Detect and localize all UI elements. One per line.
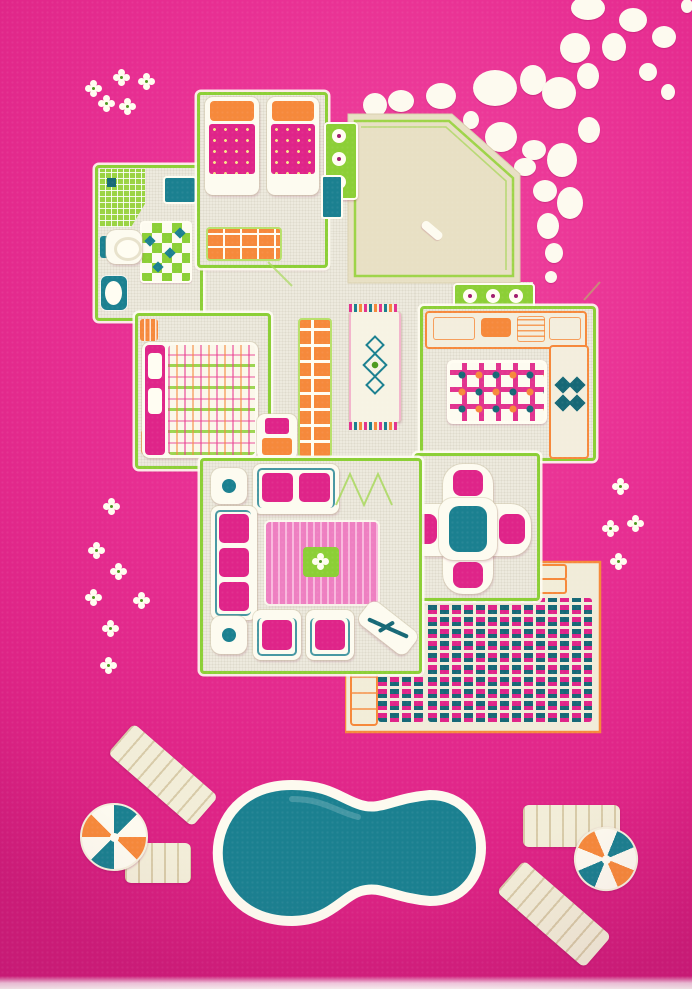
dining-chair (499, 514, 525, 544)
hall-door (321, 175, 343, 219)
swimming-pool (195, 755, 505, 940)
kids-bedroom (197, 92, 328, 268)
stepping-stone (542, 77, 576, 109)
shower-tiles (99, 169, 145, 227)
stepping-stone (681, 0, 692, 13)
sofa-cushion (299, 473, 330, 502)
stepping-stone (577, 63, 599, 89)
toy-shelf (206, 227, 282, 261)
double-bed (142, 342, 258, 458)
kids-bed (267, 97, 319, 195)
sofa (211, 506, 257, 620)
cabinet-door (433, 317, 475, 340)
flower-pot (463, 289, 477, 303)
stepping-stone (388, 90, 414, 112)
stepping-stone (652, 26, 676, 48)
kids-bed (205, 97, 259, 195)
rug-diamond (362, 352, 387, 377)
living-rug (266, 522, 378, 604)
side-table-top (222, 628, 236, 642)
kitchen-rug (447, 360, 547, 424)
dining-table-top (449, 506, 487, 552)
side-table (211, 616, 247, 654)
bath-mat (163, 176, 197, 204)
stepping-stone (560, 33, 590, 63)
living-rug-center (303, 547, 339, 577)
entrance-terrace (346, 110, 534, 287)
dining-chair (453, 470, 483, 496)
sink-basin (105, 281, 122, 305)
pillow (148, 353, 162, 379)
dining-set (403, 462, 533, 596)
radiator (140, 319, 158, 341)
stepping-stone (578, 117, 600, 143)
armchair-cushion (315, 620, 345, 650)
rug-bottom-edge (0, 976, 692, 989)
sink-counter (101, 276, 127, 310)
patio-bench (350, 666, 378, 726)
patio-checker-tiles-small (378, 670, 424, 722)
stepping-stone (545, 271, 557, 283)
flower-pot (509, 289, 523, 303)
bed-blanket-floral (209, 124, 255, 174)
rug-motif (144, 235, 155, 246)
pillow (148, 388, 162, 414)
sink-grate (517, 316, 545, 342)
stepping-stone (547, 143, 577, 177)
stepping-stone (619, 8, 647, 32)
stepping-stone (557, 187, 583, 219)
stepping-stone (545, 243, 563, 263)
sofa-cushion (219, 548, 249, 577)
stepping-stone (571, 0, 605, 20)
stepping-stone (639, 63, 657, 81)
bed-pillow (210, 101, 254, 121)
kitchen-counter (425, 311, 587, 349)
bath-rug (140, 221, 192, 283)
dining-table (439, 498, 497, 560)
nightstand-drawer (262, 438, 292, 455)
rug-motif (164, 247, 175, 258)
loveseat (253, 464, 339, 514)
rug-motif (152, 261, 163, 272)
plaid-duvet (168, 345, 255, 455)
flower-pot (486, 289, 500, 303)
armchair (253, 610, 301, 660)
rug-diamond (365, 375, 385, 395)
patio-step (537, 578, 567, 594)
cabinet-door (549, 317, 581, 340)
kitchen (420, 306, 596, 461)
rug-motif (174, 227, 185, 238)
nightstand (257, 414, 297, 460)
wardrobe-knob (332, 152, 346, 166)
rug-fringe (349, 304, 397, 312)
bookshelf (298, 318, 332, 458)
sofa-cushion (219, 514, 249, 543)
patio-checker-tiles (428, 598, 592, 722)
wardrobe-knob (332, 129, 346, 143)
stepping-stone (602, 33, 626, 61)
side-table (211, 468, 247, 504)
armchair (306, 610, 354, 660)
side-table-top (222, 479, 236, 493)
stepping-stone (426, 83, 456, 109)
stepping-stone (661, 84, 675, 100)
bathroom (95, 165, 203, 321)
parasol (80, 803, 148, 871)
shower-drain (107, 178, 116, 187)
rug-fringe (349, 422, 397, 430)
armchair-cushion (262, 620, 292, 650)
stepping-stone (473, 70, 517, 106)
kitchen-counter-side (549, 345, 589, 459)
bed-blanket-floral (271, 124, 315, 174)
burner (569, 395, 586, 412)
sofa-cushion (219, 582, 249, 611)
dining-chair (453, 562, 483, 588)
runner-rug (349, 312, 401, 422)
stepping-stone (537, 213, 559, 239)
rug-flower (317, 558, 324, 565)
play-rug (0, 0, 692, 989)
nightstand-drawer (265, 418, 289, 434)
master-bedroom (135, 313, 271, 469)
burner (569, 377, 586, 394)
toilet-seat (114, 237, 142, 261)
stove (481, 318, 511, 337)
stepping-stone (533, 180, 557, 202)
bed-pillow (272, 101, 314, 121)
sofa-cushion (262, 473, 293, 502)
toilet (106, 230, 142, 264)
